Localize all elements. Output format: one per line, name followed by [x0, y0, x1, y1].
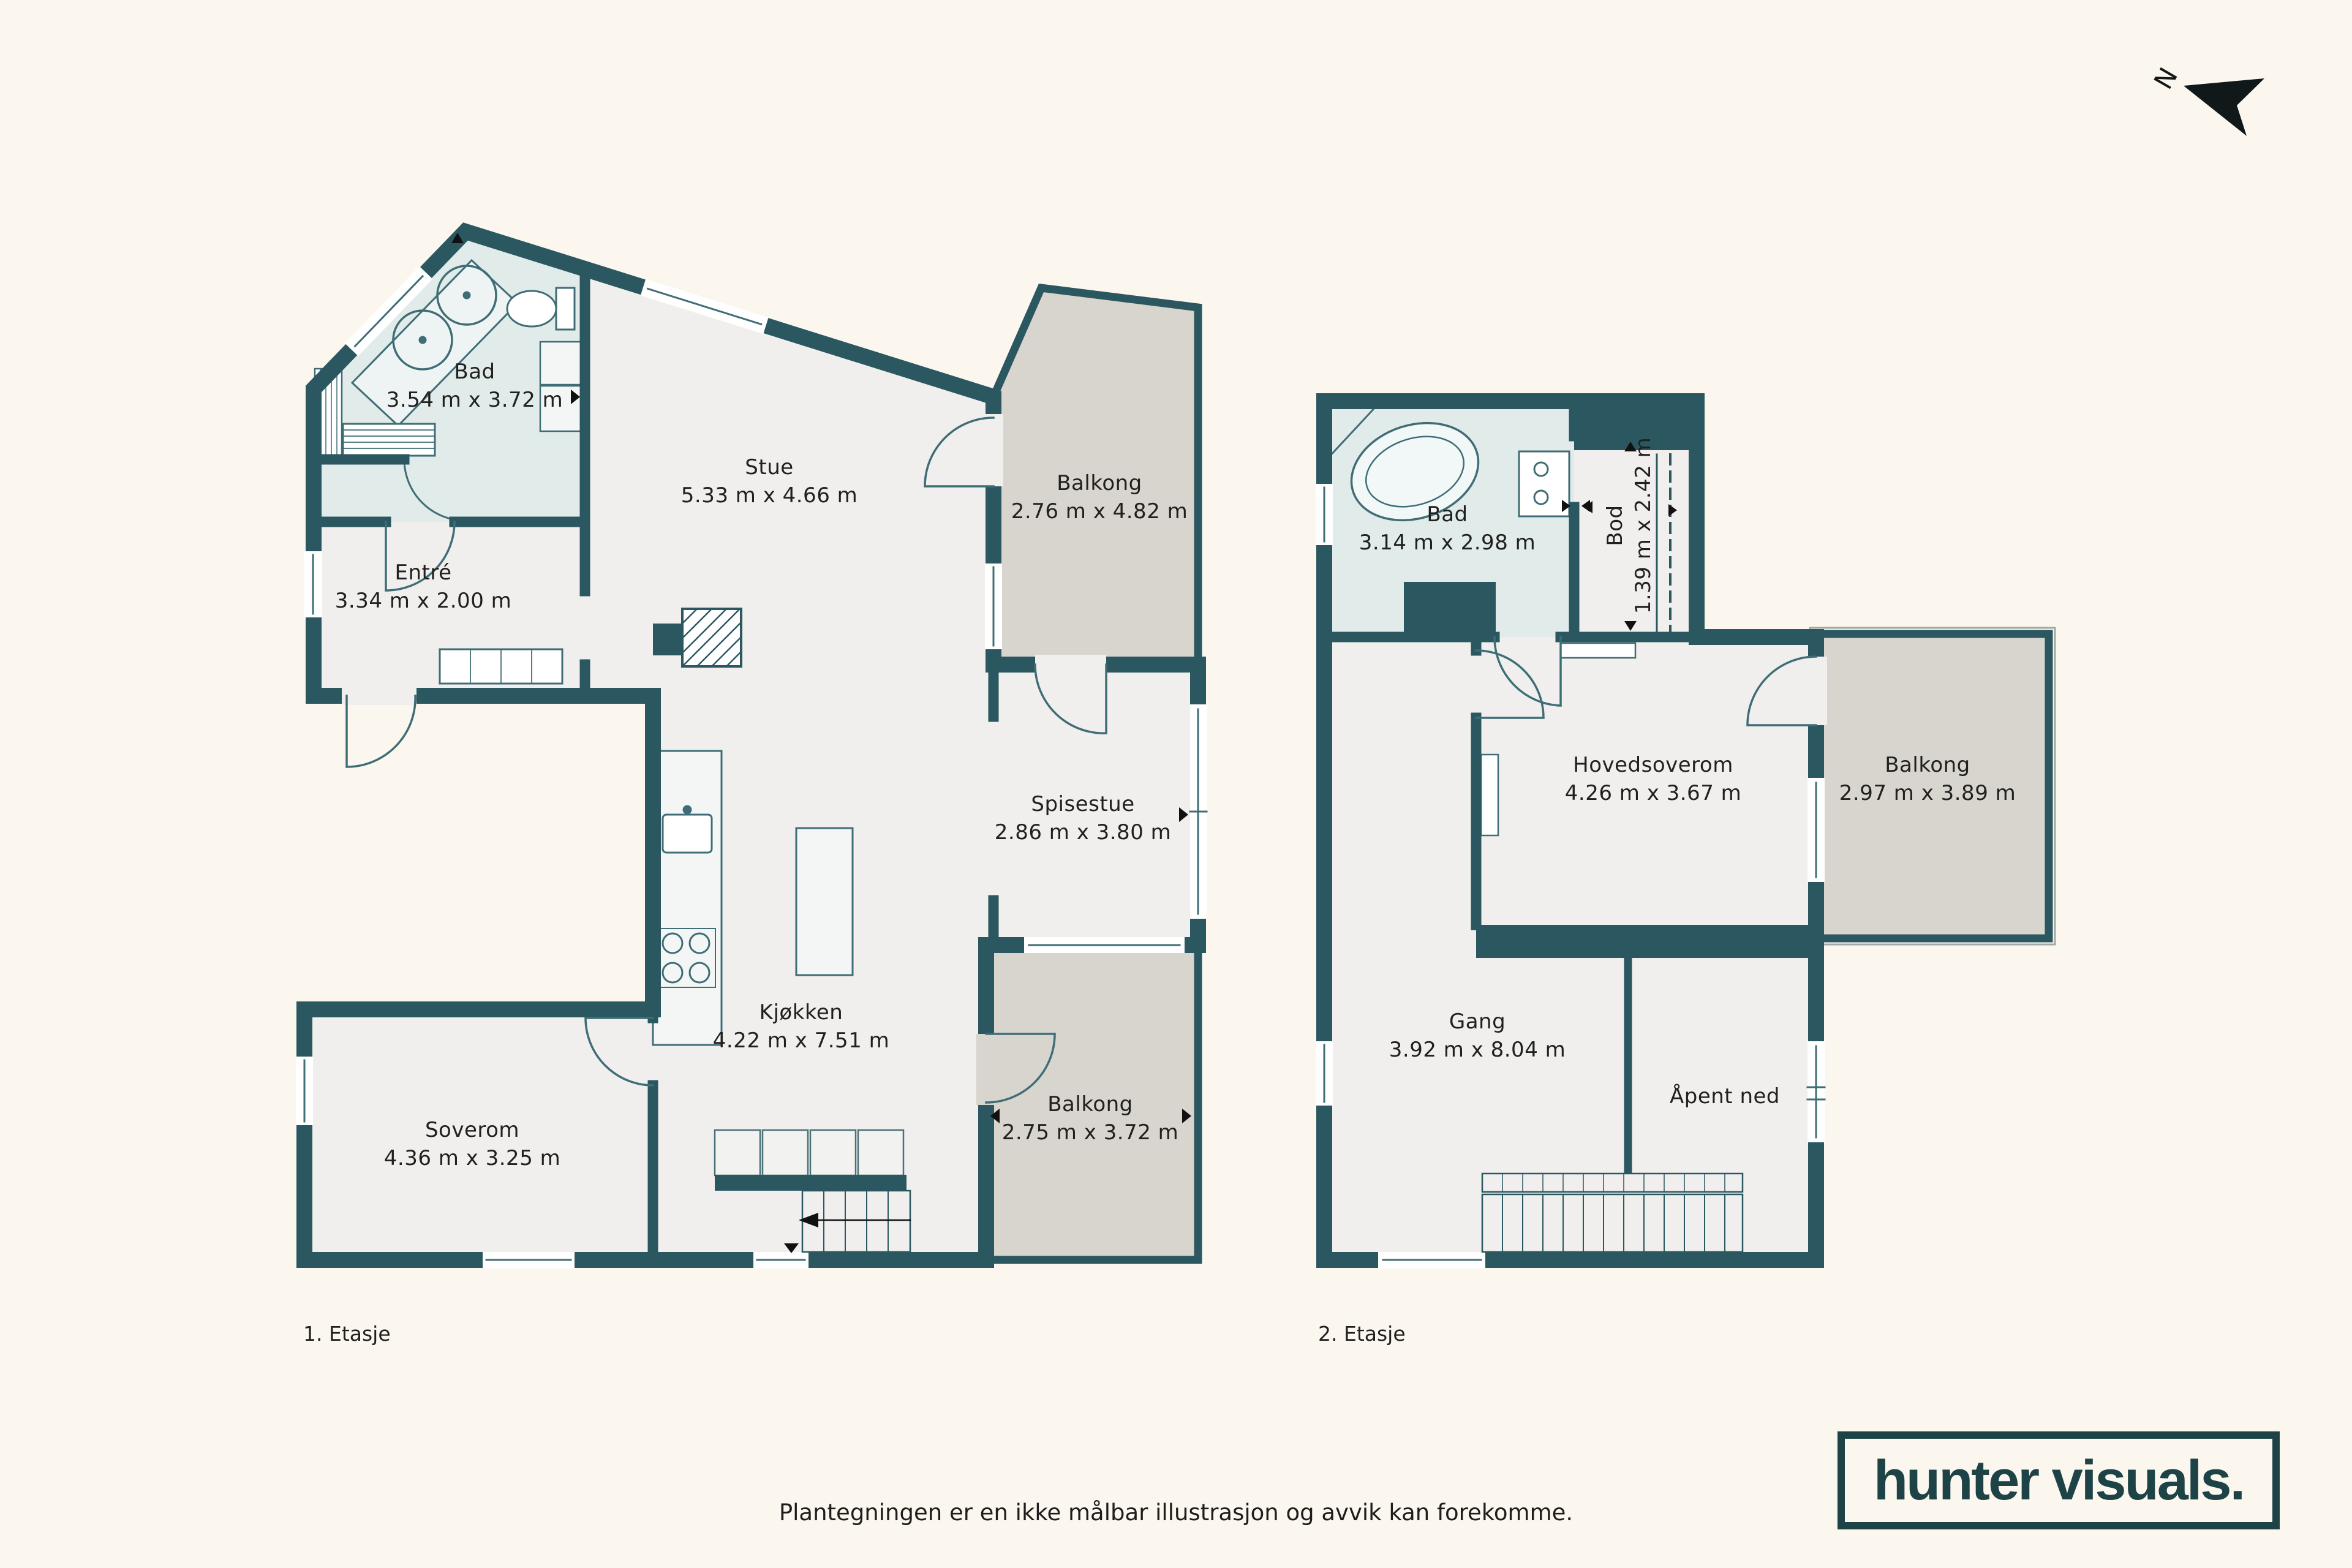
- kitchen-island: [796, 828, 853, 975]
- room-name: Spisestue: [995, 790, 1172, 818]
- room-name: Bod: [1601, 437, 1629, 614]
- room-dimensions: 2.75 m x 3.72 m: [1002, 1118, 1179, 1147]
- logo-text: hunter visuals.: [1874, 1449, 2244, 1513]
- room-dimensions: 5.33 m x 4.66 m: [681, 481, 858, 510]
- room-dimensions: 2.76 m x 4.82 m: [1011, 497, 1188, 526]
- room-dimensions: 4.26 m x 3.67 m: [1565, 779, 1742, 807]
- room-name: Hovedsoverom: [1565, 751, 1742, 779]
- room-label-soverom: Soverom 4.36 m x 3.25 m: [384, 1116, 561, 1172]
- room-name: Bad: [1359, 500, 1536, 529]
- room-name: Balkong: [1002, 1090, 1179, 1118]
- room-name: Bad: [386, 358, 563, 386]
- floor2-stairs: [1482, 1174, 1743, 1252]
- room-label-bod: Bod 1.39 m x 2.42 m: [1601, 437, 1657, 614]
- floor2-bedroom-cabinet: [1561, 643, 1635, 658]
- room-label-spisestue: Spisestue 2.86 m x 3.80 m: [995, 790, 1172, 846]
- room-dimensions: 4.36 m x 3.25 m: [384, 1144, 561, 1172]
- floor1-wall-stub: [653, 624, 684, 655]
- floor1-chimney: [682, 609, 741, 666]
- floor2-hall-closet: [1481, 755, 1498, 835]
- room-label-balkong-sor: Balkong 2.75 m x 3.72 m: [1002, 1090, 1179, 1147]
- floor1-stair-shelf-wall: [715, 1175, 907, 1191]
- room-label-entre: Entré 3.34 m x 2.00 m: [335, 559, 512, 615]
- room-name: Balkong: [1011, 469, 1188, 497]
- room-name: Balkong: [1839, 751, 2016, 779]
- disclaimer-text: Plantegningen er en ikke målbar illustra…: [779, 1499, 1573, 1526]
- room-label-bad-1: Bad 3.54 m x 3.72 m: [386, 358, 563, 414]
- room-label-balkong-2: Balkong 2.97 m x 3.89 m: [1839, 751, 2016, 807]
- floor2-caption: 2. Etasje: [1318, 1322, 1406, 1346]
- room-dimensions: 3.92 m x 8.04 m: [1389, 1036, 1566, 1064]
- room-dimensions: 3.14 m x 2.98 m: [1359, 529, 1536, 557]
- floor1-caption: 1. Etasje: [303, 1322, 391, 1346]
- room-dimensions: 1.39 m x 2.42 m: [1629, 437, 1657, 614]
- room-label-balkong-nord: Balkong 2.76 m x 4.82 m: [1011, 469, 1188, 526]
- north-arrow-icon: [2184, 78, 2264, 136]
- room-name: Åpent ned: [1670, 1082, 1780, 1110]
- room-label-hovedsoverom: Hovedsoverom 4.26 m x 3.67 m: [1565, 751, 1742, 807]
- room-label-gang: Gang 3.92 m x 8.04 m: [1389, 1008, 1566, 1064]
- room-name: Soverom: [384, 1116, 561, 1144]
- room-dimensions: 2.97 m x 3.89 m: [1839, 779, 2016, 807]
- floor2-bedroom-band-wall: [1476, 925, 1816, 958]
- room-label-bad-2: Bad 3.14 m x 2.98 m: [1359, 500, 1536, 557]
- room-name: Gang: [1389, 1008, 1566, 1036]
- room-label-apent-ned: Åpent ned: [1670, 1082, 1780, 1110]
- logo: hunter visuals.: [1838, 1431, 2280, 1529]
- room-label-stue: Stue 5.33 m x 4.66 m: [681, 453, 858, 510]
- room-dimensions: 4.22 m x 7.51 m: [713, 1027, 890, 1055]
- floorplan-page: Bad 3.54 m x 3.72 m Stue 5.33 m x 4.66 m…: [0, 0, 2352, 1568]
- room-name: Entré: [335, 559, 512, 587]
- floor1-entry-sideboard: [440, 649, 562, 684]
- room-name: Stue: [681, 453, 858, 481]
- room-label-kjokken: Kjøkken 4.22 m x 7.51 m: [713, 998, 890, 1055]
- room-dimensions: 3.54 m x 3.72 m: [386, 386, 563, 414]
- room-dimensions: 3.34 m x 2.00 m: [335, 587, 512, 615]
- floor1-stairs: [784, 1191, 910, 1253]
- room-dimensions: 2.86 m x 3.80 m: [995, 818, 1172, 846]
- room-name: Kjøkken: [713, 998, 890, 1027]
